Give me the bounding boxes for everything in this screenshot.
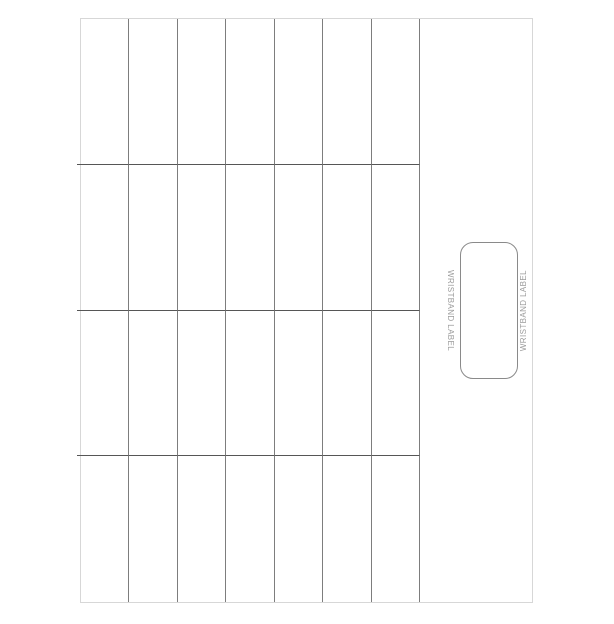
label-cell [129,165,177,311]
label-cell [372,19,420,165]
label-cell [275,311,323,457]
label-sheet-page: WRISTBAND LABEL WRISTBAND LABEL [80,18,533,603]
label-cell [81,19,129,165]
label-cell [226,165,274,311]
label-cell [323,19,371,165]
wristband-label-caption-left: WRISTBAND LABEL [443,242,457,379]
row-tick [77,310,81,311]
label-cell [323,165,371,311]
label-cell [178,165,226,311]
row-tick [77,164,81,165]
wristband-die-cut [460,242,518,379]
label-cell [275,456,323,602]
label-cell [81,311,129,457]
label-grid [81,19,420,602]
label-cell [178,19,226,165]
label-cell [129,19,177,165]
label-cell [372,311,420,457]
label-cell [129,311,177,457]
label-cell [275,19,323,165]
label-cell [372,165,420,311]
row-tick [77,455,81,456]
wristband-label-text-left: WRISTBAND LABEL [446,270,454,351]
label-cell [372,456,420,602]
label-cell [81,456,129,602]
label-cell [323,456,371,602]
label-cell [226,19,274,165]
label-cell [226,311,274,457]
label-cell [178,456,226,602]
label-cell [178,311,226,457]
wristband-label-caption-right: WRISTBAND LABEL [517,242,531,379]
screenshot-canvas: { "sheet": { "grid": { "columns": 7, "ro… [0,0,614,624]
wristband-label-text-right: WRISTBAND LABEL [520,270,528,351]
label-cell [323,311,371,457]
label-cell [275,165,323,311]
label-cell [226,456,274,602]
label-cell [129,456,177,602]
label-cell [81,165,129,311]
